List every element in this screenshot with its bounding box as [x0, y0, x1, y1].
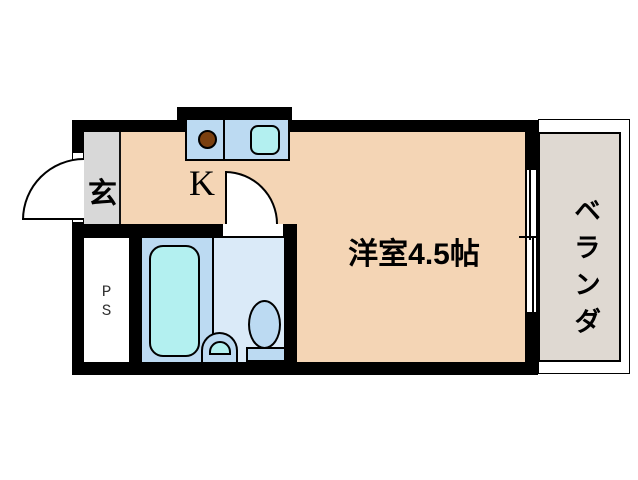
wall-right-lower: [525, 312, 538, 375]
kitchen-sink-icon: [250, 125, 280, 155]
toilet-tank-icon: [246, 347, 286, 362]
wall-bottom: [72, 362, 538, 375]
entrance-label: 玄: [84, 170, 121, 212]
wall-top: [72, 120, 538, 132]
pipe-space-label: P S: [84, 283, 129, 321]
wall-right-upper: [525, 120, 538, 170]
toilet-bowl-icon: [248, 300, 281, 349]
western-room-label: 洋室4.5帖: [314, 229, 514, 273]
sliding-window-icon: [525, 170, 527, 312]
pipe-space-label-p: P: [84, 283, 129, 302]
pipe-space-label-s: S: [84, 302, 129, 321]
wall-ps-bath: [129, 238, 142, 362]
kitchen-label: K: [178, 162, 226, 204]
stove-burner-icon: [198, 130, 217, 149]
wall-bath-room: [284, 224, 297, 362]
entrance-door-arc-icon: [22, 158, 84, 220]
window-panel-lower: [532, 236, 534, 312]
floor-plan: 玄 K 洋室4.5帖 ベランダ P S: [0, 0, 638, 480]
counter-divider: [223, 119, 225, 160]
window-panel-upper: [529, 170, 531, 240]
bathroom-door-opening: [222, 224, 284, 238]
bathtub-icon: [149, 245, 200, 357]
veranda-label: ベランダ: [566, 196, 605, 344]
